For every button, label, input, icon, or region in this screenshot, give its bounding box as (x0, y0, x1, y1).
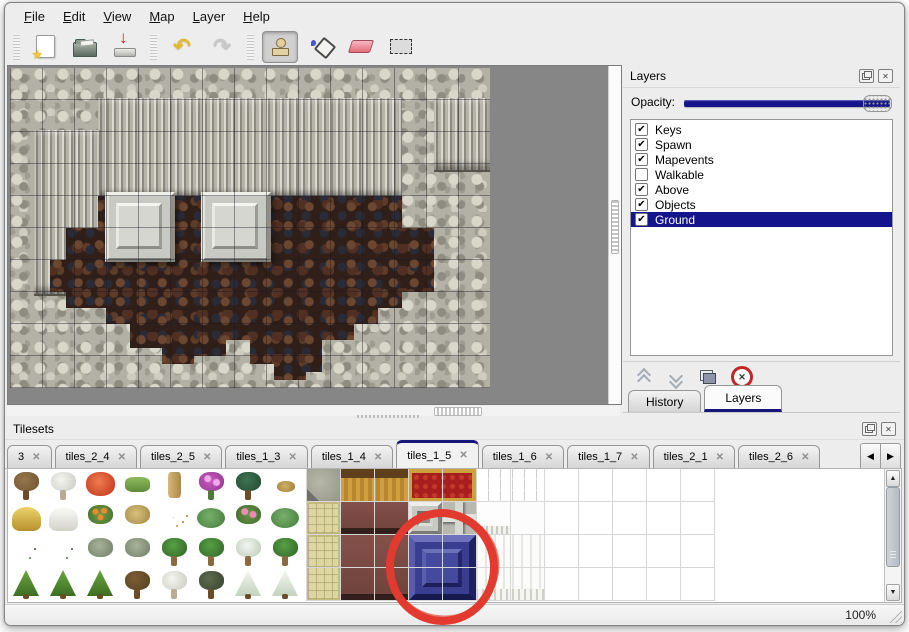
eraser-icon (348, 40, 374, 53)
tileset-tab-3[interactable]: 3✕ (7, 445, 52, 468)
layer-list: ✔Keys✔Spawn✔MapeventsWalkable✔Above✔Obje… (630, 119, 893, 356)
tile-stone-corner[interactable] (306, 469, 340, 502)
layer-label: Above (655, 183, 689, 197)
tileset-tab-label: 3 (18, 451, 24, 463)
tab-close-icon[interactable]: ✕ (545, 452, 553, 463)
new-file-button[interactable] (28, 32, 62, 62)
tileset-vertical-scrollbar[interactable]: ▲ ▼ (884, 469, 901, 602)
tileset-tab-label: tiles_1_3 (236, 451, 280, 463)
new-file-icon (36, 35, 55, 58)
dock-tab-history[interactable]: History (628, 390, 701, 412)
tileset-scrollbar-thumb[interactable] (886, 487, 900, 567)
tilesets-panel-title: Tilesets (13, 422, 858, 436)
opacity-slider-track[interactable] (684, 100, 890, 107)
layers-dock-panel: Layers ✕ Opacity: ✔Keys✔Spawn✔MapeventsW… (623, 65, 900, 413)
stamp-tool-button[interactable] (262, 31, 298, 63)
rect-select-button[interactable] (384, 32, 418, 62)
raise-layer-icon[interactable] (635, 369, 653, 385)
undo-icon (173, 34, 191, 59)
tile-tatami[interactable] (306, 535, 340, 601)
layer-row-spawn[interactable]: ✔Spawn (631, 137, 892, 152)
tile-curtain-white[interactable] (476, 535, 544, 601)
layer-label: Walkable (655, 168, 704, 182)
toolbar (5, 29, 904, 64)
layer-label: Spawn (655, 138, 692, 152)
layer-checkbox-objects[interactable]: ✔ (635, 198, 648, 211)
redo-button[interactable] (205, 32, 239, 62)
open-folder-icon (73, 42, 97, 57)
tile-palm-dark[interactable] (230, 469, 267, 502)
tile-block-hollow[interactable] (408, 502, 442, 535)
layer-row-mapevents[interactable]: ✔Mapevents (631, 152, 892, 167)
fill-bucket-icon (310, 37, 332, 57)
tile-tree-bare-snow[interactable] (156, 568, 193, 601)
opacity-row: Opacity: (623, 88, 900, 114)
tile-pine-snow[interactable] (230, 568, 267, 601)
opacity-label: Opacity: (631, 95, 675, 109)
layer-label: Mapevents (655, 153, 714, 167)
opacity-slider[interactable] (684, 94, 892, 111)
close-panel-icon[interactable]: ✕ (881, 422, 896, 436)
lower-layer-icon[interactable] (667, 369, 685, 385)
open-folder-button[interactable] (68, 32, 102, 62)
stone-pillar-cap (116, 203, 162, 249)
layer-checkbox-above[interactable]: ✔ (635, 183, 648, 196)
tile-leaves-scatter[interactable] (156, 502, 193, 535)
tab-close-icon[interactable]: ✕ (801, 452, 809, 463)
tab-close-icon[interactable]: ✕ (288, 452, 296, 463)
menu-view[interactable]: View (94, 6, 140, 27)
map-vertical-scrollbar-thumb[interactable] (611, 200, 619, 254)
menu-edit[interactable]: Edit (54, 6, 94, 27)
toolbar-grip[interactable] (13, 34, 20, 60)
tileset-tab-bar: 3✕tiles_2_4✕tiles_2_5✕tiles_1_3✕tiles_1_… (5, 440, 860, 469)
tile-fringe-white[interactable] (476, 502, 510, 535)
float-panel-icon[interactable] (859, 69, 874, 83)
toolbar-grip[interactable] (150, 34, 157, 60)
tileset-tab-label: tiles_2_6 (749, 451, 793, 463)
layer-label: Objects (655, 198, 696, 212)
layer-row-ground[interactable]: ✔Ground (631, 212, 892, 227)
tile-block-cross[interactable] (442, 502, 476, 535)
tile-bush-gray[interactable] (82, 535, 119, 568)
tab-close-icon[interactable]: ✕ (716, 452, 724, 463)
tilesets-panel-titlebar: Tilesets ✕ (5, 419, 904, 440)
tileset-tab-tiles_1_7[interactable]: tiles_1_7✕ (567, 445, 649, 468)
menu-bar: FileEditViewMapLayerHelp (5, 3, 904, 29)
flora-tile-grid (8, 469, 304, 601)
tile-carpet-red[interactable] (408, 469, 476, 502)
tile-stone-gray[interactable] (476, 469, 544, 502)
save-icon (114, 37, 136, 57)
cliff-face-right (434, 98, 490, 172)
close-panel-icon[interactable]: ✕ (878, 69, 893, 83)
tile-tree-bare-snow[interactable] (45, 469, 82, 502)
tileset-tab-tiles_1_6[interactable]: tiles_1_6✕ (482, 445, 564, 468)
tileset-tab-label: tiles_2_4 (66, 451, 110, 463)
stone-pillar-cap (212, 203, 258, 249)
tile-sprigs[interactable] (45, 535, 82, 568)
tile-stump-green[interactable] (119, 469, 156, 502)
tileset-tab-label: tiles_1_7 (578, 451, 622, 463)
toolbar-grip[interactable] (247, 34, 254, 60)
tileset-tab-label: tiles_1_4 (322, 451, 366, 463)
stamp-tool-icon (271, 38, 289, 56)
tile-pine-green[interactable] (82, 568, 119, 601)
tileset-tab-tiles_1_4[interactable]: tiles_1_4✕ (311, 445, 393, 468)
tileset-tab-tiles_2_5[interactable]: tiles_2_5✕ (140, 445, 222, 468)
tile-sprigs[interactable] (8, 535, 45, 568)
layers-panel-titlebar: Layers ✕ (623, 65, 900, 88)
tile-palm-snow[interactable] (230, 535, 267, 568)
map-vertical-scrollbar[interactable] (608, 66, 621, 404)
tileset-tab-label: tiles_2_5 (151, 451, 195, 463)
map-canvas[interactable] (10, 68, 490, 388)
tileset-tab-label: tiles_1_6 (493, 451, 537, 463)
tile-mound-hay[interactable] (8, 502, 45, 535)
layer-label: Keys (655, 123, 682, 137)
cliff-face-top (98, 98, 402, 200)
save-button[interactable] (108, 32, 142, 62)
tile-pine-green[interactable] (8, 568, 45, 601)
tab-scroll-left-icon[interactable]: ◀ (861, 444, 880, 469)
tile-lilypad[interactable] (267, 502, 304, 535)
resize-grip[interactable] (885, 606, 902, 623)
tile-bloom-red[interactable] (82, 469, 119, 502)
float-panel-icon[interactable] (862, 422, 877, 436)
tile-cloth-maroon[interactable] (340, 502, 408, 535)
scroll-up-icon[interactable]: ▲ (886, 470, 900, 487)
layer-checkbox-walkable[interactable] (635, 168, 648, 181)
status-bar: 100% (5, 604, 904, 625)
tile-tree-bare[interactable] (8, 469, 45, 502)
stone-pillar (105, 192, 175, 262)
undo-button[interactable] (165, 32, 199, 62)
layer-row-objects[interactable]: ✔Objects (631, 197, 892, 212)
tilesets-panel: Tilesets ✕ 3✕tiles_2_4✕tiles_2_5✕tiles_1… (5, 419, 904, 605)
layer-checkbox-mapevents[interactable]: ✔ (635, 153, 648, 166)
tile-bush-gray[interactable] (119, 535, 156, 568)
tileset-tab-label: tiles_1_5 (407, 450, 451, 462)
map-canvas-viewport[interactable] (7, 65, 622, 405)
tile-palm[interactable] (267, 535, 304, 568)
tile-block-blue[interactable] (408, 535, 476, 601)
splitter-grip[interactable] (357, 415, 421, 418)
tab-close-icon[interactable]: ✕ (32, 452, 40, 463)
tab-close-icon[interactable]: ✕ (374, 452, 382, 463)
tab-close-icon[interactable]: ✕ (203, 452, 211, 463)
tileset-tab-tiles_1_3[interactable]: tiles_1_3✕ (225, 445, 307, 468)
menu-layer[interactable]: Layer (184, 6, 235, 27)
tile-palm[interactable] (156, 535, 193, 568)
duplicate-layer-icon[interactable] (699, 369, 717, 385)
opacity-slider-handle[interactable] (863, 95, 892, 112)
menu-map[interactable]: Map (140, 6, 183, 27)
rect-select-icon (390, 39, 412, 54)
tile-bush-dry[interactable] (119, 502, 156, 535)
eraser-button[interactable] (344, 32, 378, 62)
furniture-tile-grid (306, 469, 715, 601)
tile-pine-snow[interactable] (267, 568, 304, 601)
tileset-tab-tiles_1_5[interactable]: tiles_1_5✕ (396, 440, 478, 468)
tile-pine-green[interactable] (45, 568, 82, 601)
tile-cloth-maroon[interactable] (340, 535, 408, 601)
zoom-level: 100% (845, 608, 876, 622)
tile-sprout-tan[interactable] (267, 469, 304, 502)
tab-close-icon[interactable]: ✕ (630, 452, 638, 463)
tile-bush-rose[interactable] (230, 502, 267, 535)
tile-tile-white[interactable] (510, 502, 544, 535)
layer-row-above[interactable]: ✔Above (631, 182, 892, 197)
tab-close-icon[interactable]: ✕ (459, 450, 467, 461)
tile-desk-gold[interactable] (340, 469, 408, 502)
layer-row-walkable[interactable]: Walkable (631, 167, 892, 182)
tileset-tab-label: tiles_2_1 (664, 451, 708, 463)
tile-palm[interactable] (193, 535, 230, 568)
tile-trunk-tan[interactable] (156, 469, 193, 502)
tileset-tab-scroll-buttons: ◀ ▶ (860, 443, 901, 470)
tileset-tab-tiles_2_6[interactable]: tiles_2_6✕ (738, 445, 820, 468)
redo-icon (213, 34, 231, 59)
tileset-tab-tiles_2_4[interactable]: tiles_2_4✕ (55, 445, 137, 468)
fill-bucket-button[interactable] (304, 32, 338, 62)
tile-lilypad[interactable] (193, 502, 230, 535)
layer-label: Ground (655, 213, 695, 227)
tile-mound-snow[interactable] (45, 502, 82, 535)
tile-tatami[interactable] (306, 502, 340, 535)
dock-tab-layers[interactable]: Layers (704, 385, 782, 412)
layer-checkbox-ground[interactable]: ✔ (635, 213, 648, 226)
tileset-tab-tiles_2_1[interactable]: tiles_2_1✕ (653, 445, 735, 468)
tile-flowers-orange[interactable] (82, 502, 119, 535)
app-window: FileEditViewMapLayerHelp Layers ✕ Opacit… (4, 2, 905, 626)
tile-tree-bare-dark[interactable] (119, 568, 156, 601)
tile-tree-dark[interactable] (193, 568, 230, 601)
tab-scroll-right-icon[interactable]: ▶ (880, 444, 900, 469)
layer-checkbox-spawn[interactable]: ✔ (635, 138, 648, 151)
scroll-down-icon[interactable]: ▼ (886, 584, 900, 601)
layer-checkbox-keys[interactable]: ✔ (635, 123, 648, 136)
layer-row-keys[interactable]: ✔Keys (631, 122, 892, 137)
tab-close-icon[interactable]: ✕ (118, 452, 126, 463)
stone-pillar (201, 192, 271, 262)
menu-file[interactable]: File (15, 6, 54, 27)
layers-panel-title: Layers (630, 69, 855, 83)
tileset-content[interactable]: ▲ ▼ (7, 468, 902, 603)
dock-bottom-tabs: HistoryLayers (623, 385, 900, 413)
tile-bush-pink[interactable] (193, 469, 230, 502)
menu-help[interactable]: Help (234, 6, 279, 27)
